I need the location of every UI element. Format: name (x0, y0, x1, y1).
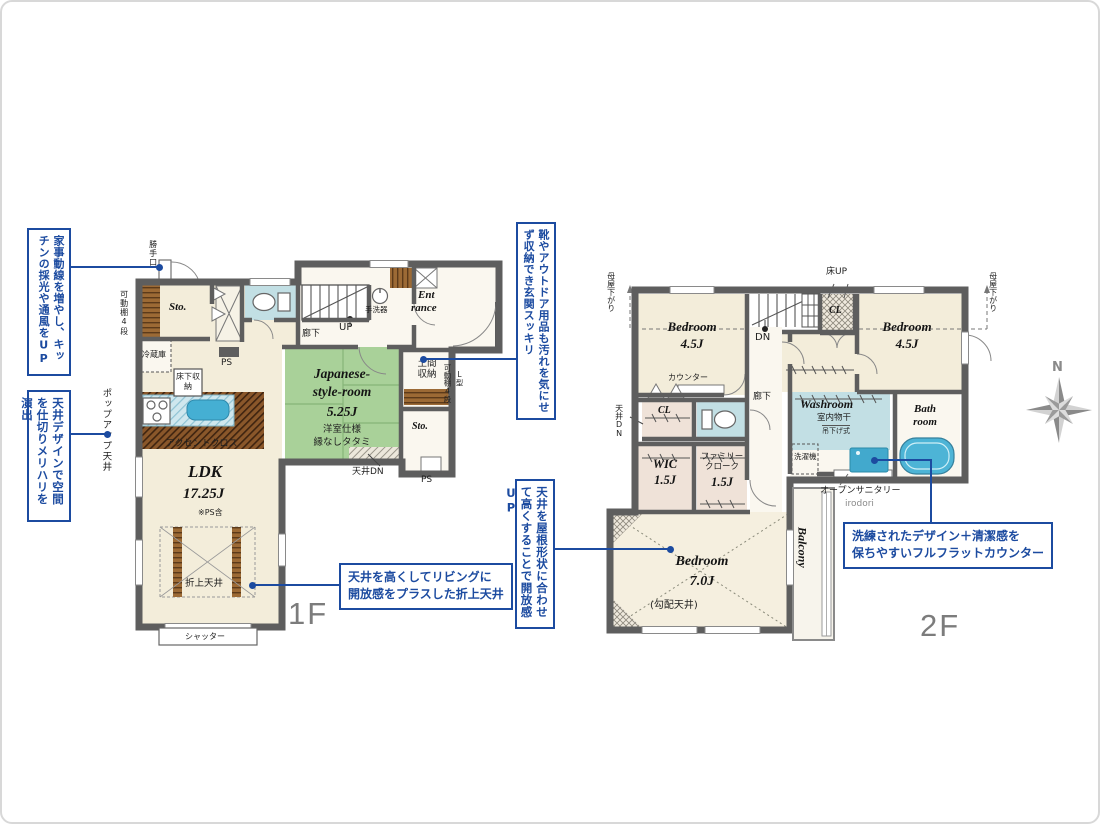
label-washer: 洗濯機 (794, 452, 817, 461)
label-ldk-size: 17.25J (183, 485, 224, 503)
connector-ceiling-design (71, 433, 108, 435)
label-sto1: Sto. (169, 301, 186, 314)
label-family-cloak: ファミリー クローク (697, 452, 747, 472)
label-bedroom-right-size: 4.5J (857, 336, 957, 352)
label-corridor-1f: 廊下 (302, 329, 320, 340)
connector-counter-v (930, 459, 932, 522)
label-japanese-spec1: 洋室仕様 (292, 424, 392, 435)
label-bedroom-right: Bedroom (857, 319, 957, 335)
label-handwash: 手洗器 (365, 305, 388, 314)
label-slope-ceiling: (勾配天井) (650, 600, 698, 612)
ceiling-dn-hatch (349, 447, 399, 459)
room-closet-mid-floor (782, 332, 857, 392)
label-balcony: Balcony (795, 527, 809, 568)
toilet-1f-icon (253, 293, 290, 311)
sto1-shelf (142, 285, 160, 337)
label-cl-left: CL (658, 405, 671, 417)
entrance-shelf (390, 268, 412, 288)
label-doma: 土間 収納 (407, 358, 447, 381)
note-coffered-line2: 開放感をプラスした折上天井 (348, 586, 504, 603)
label-up: UP (339, 322, 352, 334)
label-open-sanitary: オープンサニタリー (820, 486, 900, 497)
label-shutter: シャッター (185, 632, 225, 642)
label-bedroom-left: Bedroom (642, 319, 742, 335)
note-coffered-ceiling: 天井を高くしてリビングに 開放感をプラスした折上天井 (339, 563, 513, 610)
connector-dot-sloped (667, 546, 674, 553)
floor-label-1f: 1F (288, 595, 328, 632)
label-bedroom-left-size: 4.5J (642, 336, 742, 352)
note-kitchen-flow: 家事動線を増やし、キッチンの採光や通風をUP (27, 228, 71, 376)
label-family-size: 1.5J (697, 475, 747, 490)
label-japanese-l2: style-room (292, 384, 392, 400)
connector-dot-coffered (249, 582, 256, 589)
washbasin-faucet (856, 451, 860, 455)
compass-rose (1026, 377, 1092, 443)
label-back-door: 勝手口 (148, 240, 158, 267)
note-flat-counter: 洗練されたデザイン＋清潔感を 保ちやすいフルフラットカウンター (843, 522, 1053, 569)
label-moya-left: 母屋下がり (606, 272, 616, 312)
label-yuka-up: 床UP (826, 267, 847, 278)
label-japanese-spec2: 縁なしタタミ (292, 437, 392, 448)
label-counter: カウンター (668, 373, 708, 383)
room-corridor-2f-floor (750, 327, 782, 512)
label-dn: DN (755, 332, 770, 344)
toilet-2f-icon (702, 410, 736, 429)
connector-sloped (555, 548, 670, 550)
label-shelf-l-4dan: 可動棚4段 (443, 364, 452, 403)
label-fridge: 冷蔵庫 (142, 350, 166, 360)
compass-north-label: N (1052, 360, 1063, 376)
entrance-x-box (414, 268, 437, 288)
connector-kitchen-flow (71, 266, 159, 268)
label-irodori: irodori (845, 499, 874, 510)
floor-label-2f: 2F (920, 607, 960, 644)
label-accent-cross: アクセントクロス (166, 439, 238, 450)
label-wic-size: 1.5J (640, 473, 690, 488)
label-tsurisage: 吊下げ式 (822, 425, 850, 435)
label-washroom: Washroom (800, 397, 853, 411)
ps-nub (219, 347, 239, 357)
sink-icon (187, 400, 229, 420)
label-shelf-4dan: 可動棚4段 (119, 290, 129, 336)
stair-banister (802, 294, 820, 327)
handwash-icon (373, 289, 388, 304)
connector-dot-ceiling-design (104, 431, 111, 438)
label-bedroom7: Bedroom (642, 554, 762, 571)
label-sto2: Sto. (412, 421, 428, 433)
label-coffered: 折上天井 (185, 578, 223, 589)
label-ceiling-dn-2f: 天井DN (614, 404, 624, 438)
note-counter-line1: 洗練されたデザイン＋清潔感を (852, 528, 1044, 545)
note-sloped-ceiling: 天井を屋根形状に合わせて高くすることで開放感UP (515, 479, 555, 629)
note-ceiling-design: 天井デザインで空間を仕切りメリハリを演出 (27, 390, 71, 522)
bathtub-icon (900, 438, 954, 474)
connector-dot-kitchen-flow (156, 264, 163, 271)
label-japanese-size: 5.25J (292, 404, 392, 420)
note-counter-line2: 保ちやすいフルフラットカウンター (852, 545, 1044, 562)
connector-counter-h (874, 459, 932, 461)
label-japanese-l1: Japanese- (292, 366, 392, 382)
label-ldk: LDK (188, 462, 222, 482)
note-coffered-line1: 天井を高くしてリビングに (348, 569, 504, 586)
label-ceiling-dn-1f: 天井DN (352, 467, 384, 478)
connector-entrance (423, 358, 516, 360)
label-moya-right: 母屋下がり (988, 272, 998, 312)
label-ps-note: ※PS含 (198, 508, 223, 518)
label-monohoshi: 室内物干 (817, 413, 851, 423)
label-popup-ceiling: ポップアップ天井 (100, 388, 111, 472)
label-wic: WIC (640, 457, 690, 472)
label-cl-top: CL (829, 305, 842, 317)
connector-dot-entrance (420, 356, 427, 363)
label-entrance-l2: rance (411, 302, 437, 315)
floorplan-page: 勝手口 可動棚4段 Sto. 冷蔵庫 床下収納 PS ポップアップ天井 アクセン… (0, 0, 1100, 824)
label-entrance-l1: Ent (418, 289, 435, 302)
label-bedroom7-size: 7.0J (642, 574, 762, 591)
label-ps-kitchen: PS (221, 358, 232, 369)
connector-coffered (252, 584, 339, 586)
label-shelf-l-type: L型 (455, 370, 464, 387)
label-ps-bottom: PS (421, 475, 432, 486)
note-entrance-storage: 靴やアウトドア用品も汚れを気にせず収納でき玄関スッキリ (516, 222, 556, 420)
label-floor-storage: 床下収納 (176, 372, 200, 391)
label-bathroom: Bath room (900, 403, 950, 429)
connector-dot-counter (871, 457, 878, 464)
label-corridor-2f: 廊下 (753, 392, 771, 403)
